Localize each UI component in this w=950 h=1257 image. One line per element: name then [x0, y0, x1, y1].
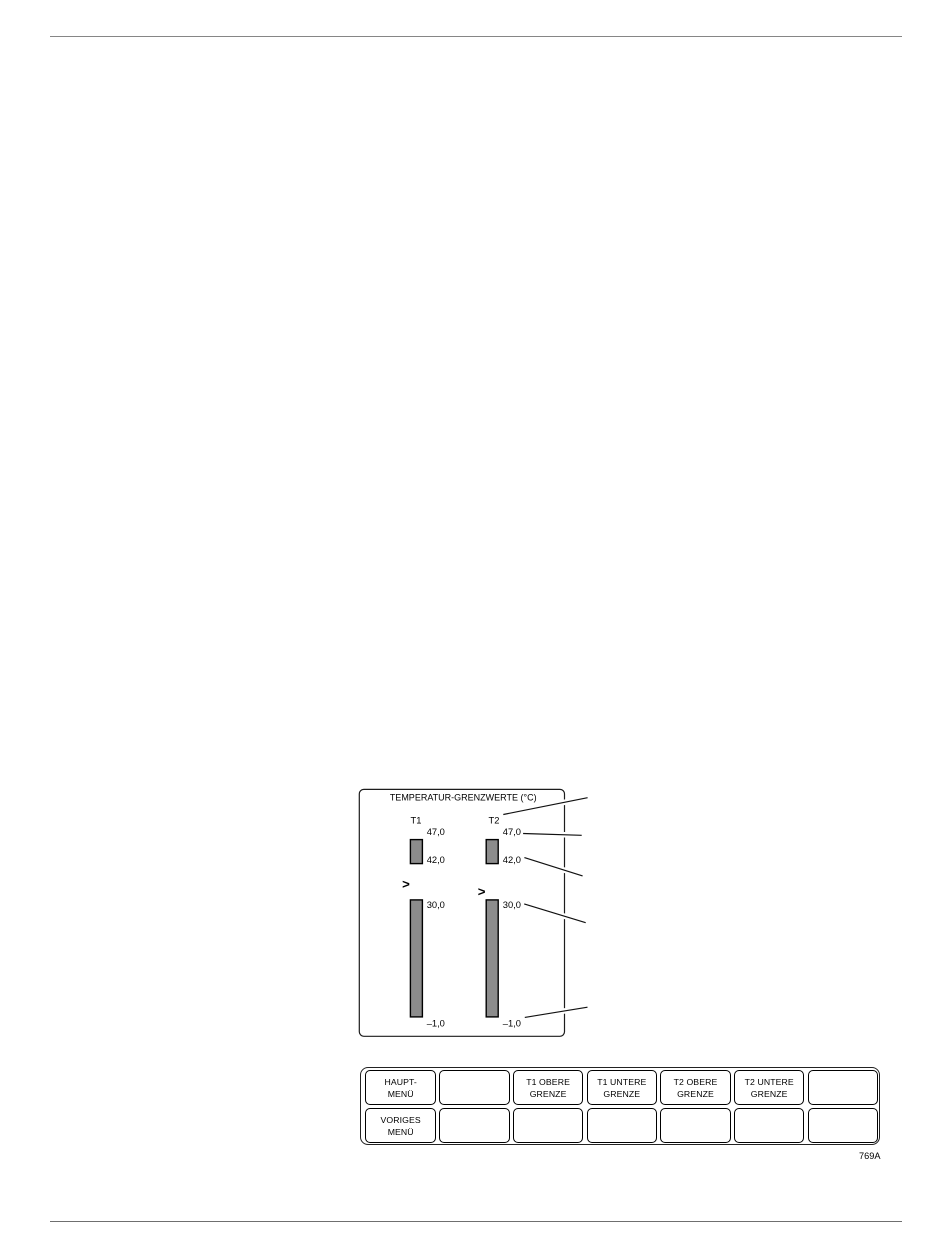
svg-text:–1,0: –1,0 — [427, 1018, 445, 1028]
svg-text:42,0: 42,0 — [503, 855, 521, 865]
svg-text:47,0: 47,0 — [503, 827, 521, 837]
svg-text:TEMPERATUR-GRENZWERTE (°C): TEMPERATUR-GRENZWERTE (°C) — [390, 792, 537, 802]
svg-text:30,0: 30,0 — [503, 900, 521, 910]
svg-text:T1: T1 — [411, 815, 422, 825]
svg-text:47,0: 47,0 — [427, 827, 445, 837]
svg-text:>: > — [402, 876, 410, 891]
svg-text:42,0: 42,0 — [427, 855, 445, 865]
svg-text:T2: T2 — [489, 815, 500, 825]
svg-text:>: > — [478, 884, 486, 899]
svg-text:–1,0: –1,0 — [503, 1018, 521, 1028]
svg-text:30,0: 30,0 — [427, 900, 445, 910]
